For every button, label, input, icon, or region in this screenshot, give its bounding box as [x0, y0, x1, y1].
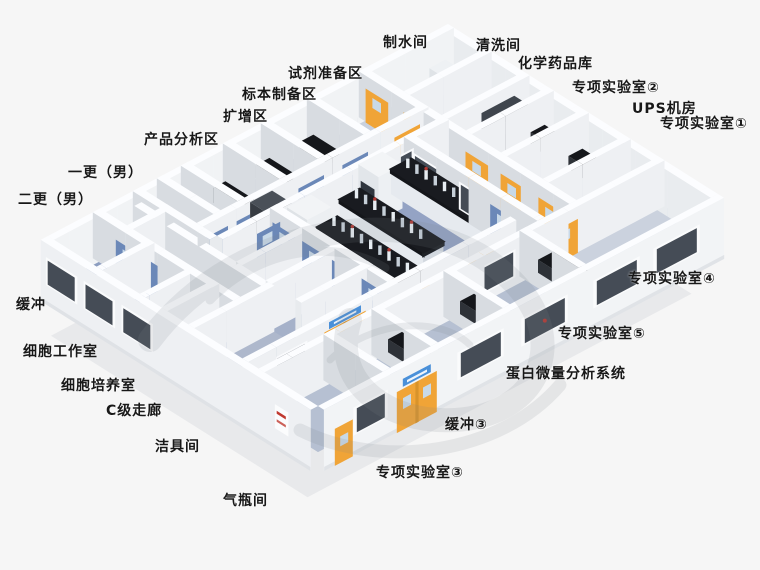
- label-special-lab-5: 专项实验室⑤: [558, 327, 646, 342]
- label-buffer-3: 缓冲③: [445, 418, 488, 433]
- label-buffer: 缓冲: [16, 298, 46, 313]
- label-second-change-male: 二更（男）: [18, 193, 93, 208]
- label-product-analysis-area: 产品分析区: [144, 133, 219, 148]
- label-special-lab-2: 专项实验室②: [572, 81, 660, 96]
- lab-floorplan-scene: 制水间 清洗间 化学药品库 专项实验室② UPS机房 专项实验室① 试剂准备区 …: [0, 0, 760, 570]
- label-special-lab-4: 专项实验室④: [628, 272, 716, 287]
- label-cell-workroom: 细胞工作室: [23, 345, 98, 360]
- label-reagent-prep-area: 试剂准备区: [288, 67, 363, 82]
- label-special-lab-3: 专项实验室③: [376, 466, 464, 481]
- label-water-making-room: 制水间: [383, 36, 428, 51]
- label-washing-room: 清洗间: [476, 39, 521, 54]
- label-cell-culture-room: 细胞培养室: [61, 379, 136, 394]
- label-cleaning-tools-room: 洁具间: [155, 440, 200, 455]
- label-special-lab-1: 专项实验室①: [660, 117, 748, 132]
- label-protein-microanalysis: 蛋白微量分析系统: [506, 367, 626, 382]
- label-first-change-male: 一更（男）: [68, 166, 143, 181]
- label-amplification-area: 扩增区: [223, 110, 268, 125]
- label-chemical-storage: 化学药品库: [518, 57, 593, 72]
- label-gas-cylinder-room: 气瓶间: [223, 494, 268, 509]
- label-specimen-prep-area: 标本制备区: [242, 88, 317, 103]
- label-grade-c-corridor: C级走廊: [106, 404, 162, 419]
